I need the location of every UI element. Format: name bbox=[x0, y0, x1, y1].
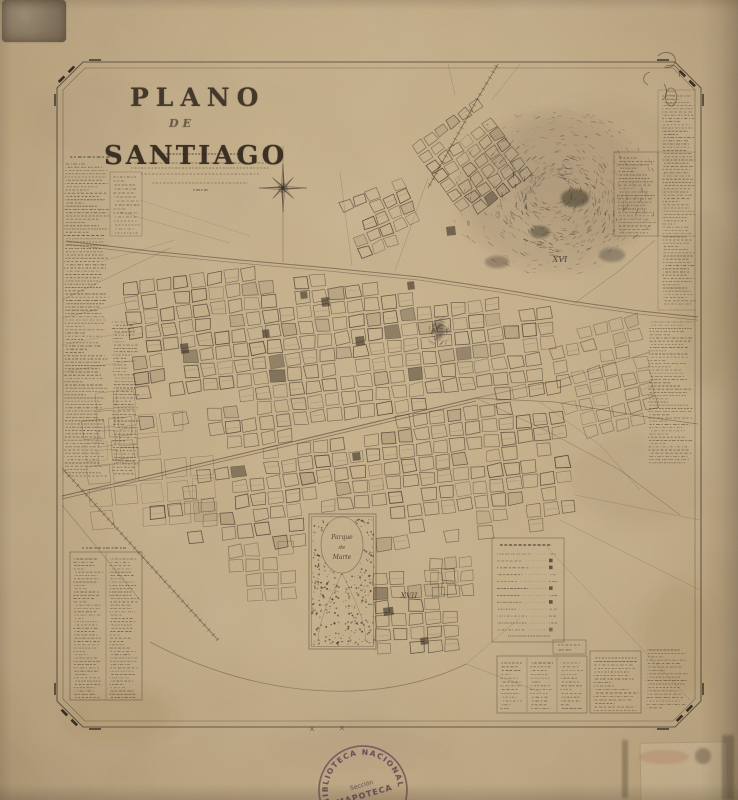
park-label-line1: Parque bbox=[330, 534, 353, 541]
park-label-line2: de bbox=[339, 545, 346, 551]
district-numeral-xvi: XVI bbox=[552, 255, 568, 264]
map-title-de: DE bbox=[132, 117, 232, 130]
park-label-line3: Marte bbox=[332, 554, 352, 561]
district-numeral-xvii: XVII bbox=[400, 591, 419, 600]
photograph-of-antique-map: Parque de Marte XVI XVII BIBLIOTECA NACI… bbox=[0, 0, 738, 800]
map-title-plano: PLANO bbox=[130, 83, 234, 112]
map-artwork: Parque de Marte XVI XVII BIBLIOTECA NACI… bbox=[0, 0, 738, 800]
map-title-santiago: SANTIAGO bbox=[104, 141, 260, 171]
